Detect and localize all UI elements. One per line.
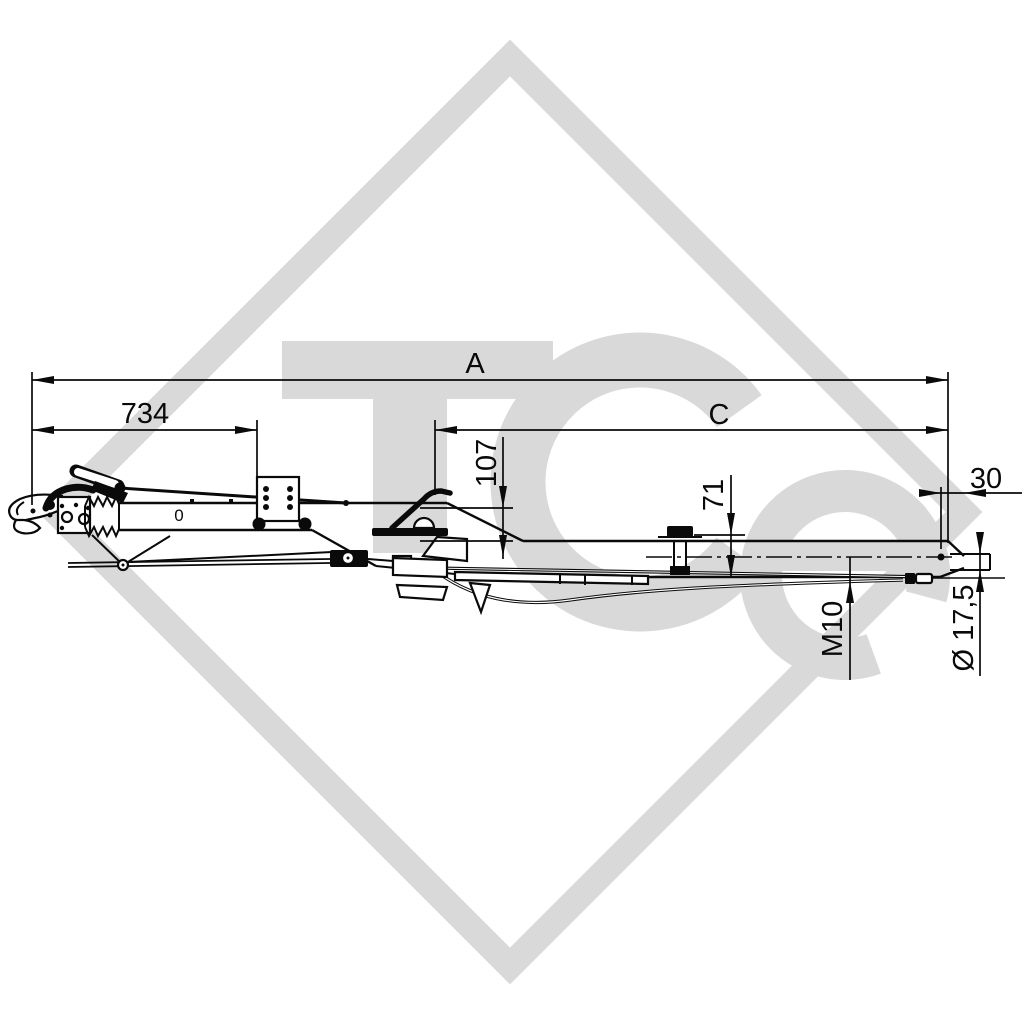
cable-end-nipple xyxy=(905,573,1005,584)
svg-text:107: 107 xyxy=(471,439,503,487)
svg-text:71: 71 xyxy=(698,479,730,511)
tube-zero-mark: 0 xyxy=(174,506,183,525)
end-hole xyxy=(938,554,945,561)
technical-drawing-page: 0 A 734 C 107 71 xyxy=(0,0,1024,1024)
svg-text:C: C xyxy=(709,399,730,431)
watermark xyxy=(56,58,964,966)
svg-text:M10: M10 xyxy=(817,601,849,657)
svg-text:A: A xyxy=(465,348,485,380)
dome-knob xyxy=(414,518,434,528)
svg-text:734: 734 xyxy=(121,398,169,430)
overrun-device-drawing: 0 A 734 C 107 71 xyxy=(0,0,1024,1024)
svg-text:Ø 17,5: Ø 17,5 xyxy=(948,584,980,671)
svg-text:30: 30 xyxy=(970,463,1002,495)
